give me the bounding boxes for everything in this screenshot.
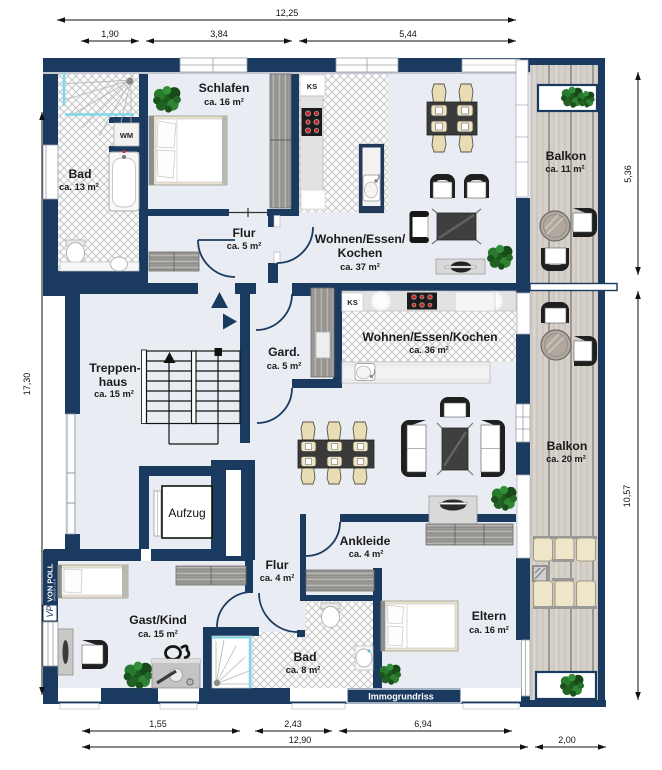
svg-text:Treppen-: Treppen- xyxy=(89,361,140,375)
svg-text:12,90: 12,90 xyxy=(289,735,312,745)
svg-text:WM: WM xyxy=(120,131,133,140)
svg-text:Flur: Flur xyxy=(232,226,255,240)
svg-text:KS: KS xyxy=(307,82,317,91)
svg-text:Flur: Flur xyxy=(265,558,288,572)
svg-text:ca. 15 m²: ca. 15 m² xyxy=(138,629,178,639)
svg-text:Balkon: Balkon xyxy=(547,439,588,453)
svg-text:ca. 5 m²: ca. 5 m² xyxy=(227,241,262,251)
svg-text:ca. 8 m²: ca. 8 m² xyxy=(286,665,321,675)
svg-text:ca. 36 m²: ca. 36 m² xyxy=(409,345,449,355)
svg-text:haus: haus xyxy=(99,375,128,389)
svg-text:Gard.: Gard. xyxy=(268,345,300,359)
svg-text:ca. 4 m²: ca. 4 m² xyxy=(349,549,384,559)
svg-text:1,90: 1,90 xyxy=(101,29,119,39)
svg-text:5,36: 5,36 xyxy=(623,165,633,183)
svg-text:Wohnen/Essen/: Wohnen/Essen/ xyxy=(315,232,406,246)
svg-text:10,57: 10,57 xyxy=(622,485,632,508)
svg-text:Bad: Bad xyxy=(293,650,316,664)
svg-text:Immogrundriss: Immogrundriss xyxy=(368,692,434,702)
svg-text:5,44: 5,44 xyxy=(399,29,417,39)
svg-text:Aufzug: Aufzug xyxy=(168,506,205,520)
svg-text:Schlafen: Schlafen xyxy=(199,81,250,95)
svg-text:2,43: 2,43 xyxy=(284,719,302,729)
svg-text:Kochen: Kochen xyxy=(338,246,383,260)
svg-text:IMMOBILIEN: IMMOBILIEN xyxy=(53,579,57,601)
svg-text:2,00: 2,00 xyxy=(558,735,576,745)
svg-text:Ankleide: Ankleide xyxy=(340,534,391,548)
svg-text:ca. 4 m²: ca. 4 m² xyxy=(260,573,295,583)
svg-text:KS: KS xyxy=(347,298,357,307)
svg-text:ca. 5 m²: ca. 5 m² xyxy=(267,361,302,371)
svg-text:Bad: Bad xyxy=(68,167,91,181)
svg-text:VP: VP xyxy=(45,605,55,617)
svg-text:ca. 11 m²: ca. 11 m² xyxy=(545,164,584,174)
svg-text:ca. 20 m²: ca. 20 m² xyxy=(546,454,586,464)
svg-text:ca. 16 m²: ca. 16 m² xyxy=(469,625,509,635)
svg-text:17,30: 17,30 xyxy=(22,373,32,396)
svg-text:ca. 16 m²: ca. 16 m² xyxy=(204,97,244,107)
svg-text:1,55: 1,55 xyxy=(149,719,167,729)
svg-text:ca. 13 m²: ca. 13 m² xyxy=(59,182,99,192)
svg-text:Gast/Kind: Gast/Kind xyxy=(129,613,187,627)
svg-text:ca. 37 m²: ca. 37 m² xyxy=(340,262,380,272)
svg-text:6,94: 6,94 xyxy=(414,719,432,729)
svg-text:Eltern: Eltern xyxy=(472,609,507,623)
svg-text:3,84: 3,84 xyxy=(210,29,228,39)
svg-text:ca. 15 m²: ca. 15 m² xyxy=(94,389,134,399)
svg-text:12,25: 12,25 xyxy=(276,8,299,18)
svg-text:Balkon: Balkon xyxy=(546,149,587,163)
svg-text:Wohnen/Essen/Kochen: Wohnen/Essen/Kochen xyxy=(362,330,497,344)
